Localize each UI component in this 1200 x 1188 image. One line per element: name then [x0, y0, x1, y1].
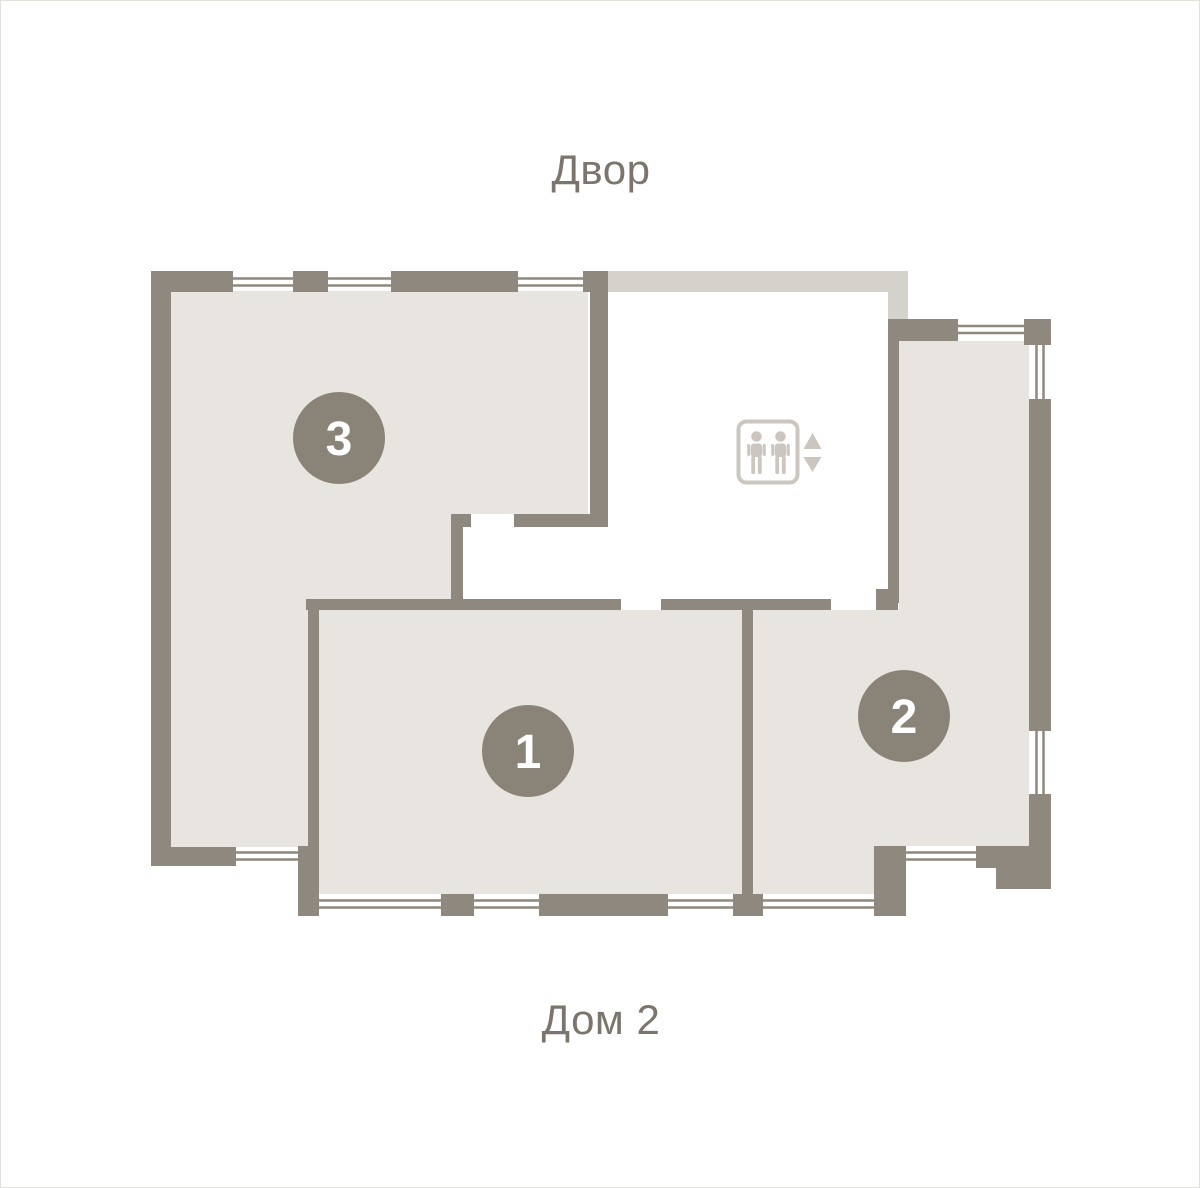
elevator-people-icon: [747, 431, 821, 474]
wall-segment: [151, 271, 171, 866]
apartment-1-number: 1: [515, 726, 542, 779]
hall-band-shape: [608, 271, 908, 319]
wall-segment: [1029, 399, 1051, 731]
elevator-down-arrow-icon: [804, 457, 822, 472]
floor-plan-svg: Двор Дом 2: [1, 1, 1200, 1188]
house-label: Дом 2: [542, 996, 661, 1043]
wall-segment: [151, 271, 233, 292]
apartment-3-number: 3: [326, 413, 353, 466]
wall-segment: [888, 319, 958, 341]
elevator-icon: [739, 422, 822, 483]
wall-segment: [293, 271, 328, 292]
hall-outline-band: [608, 271, 908, 319]
wall-segment: [151, 847, 236, 866]
floor-plan-page: Двор Дом 2: [0, 0, 1200, 1188]
wall-segment: [306, 599, 621, 610]
wall-segment: [308, 599, 319, 916]
wall-segment: [391, 271, 518, 292]
wall-segment: [539, 894, 668, 916]
wall-segment: [1024, 319, 1051, 345]
wall-segment: [874, 846, 906, 916]
elevator-up-arrow-icon: [804, 433, 822, 449]
wall-segment: [742, 609, 753, 899]
wall-segment: [441, 894, 474, 916]
courtyard-label: Двор: [551, 146, 650, 193]
wall-segment: [661, 599, 831, 610]
wall-segment: [451, 514, 463, 609]
wall-segment: [888, 321, 899, 603]
wall-segment: [590, 271, 608, 526]
apartment-2-number: 2: [891, 691, 918, 744]
wall-segment: [996, 846, 1051, 889]
wall-segment: [514, 514, 608, 527]
